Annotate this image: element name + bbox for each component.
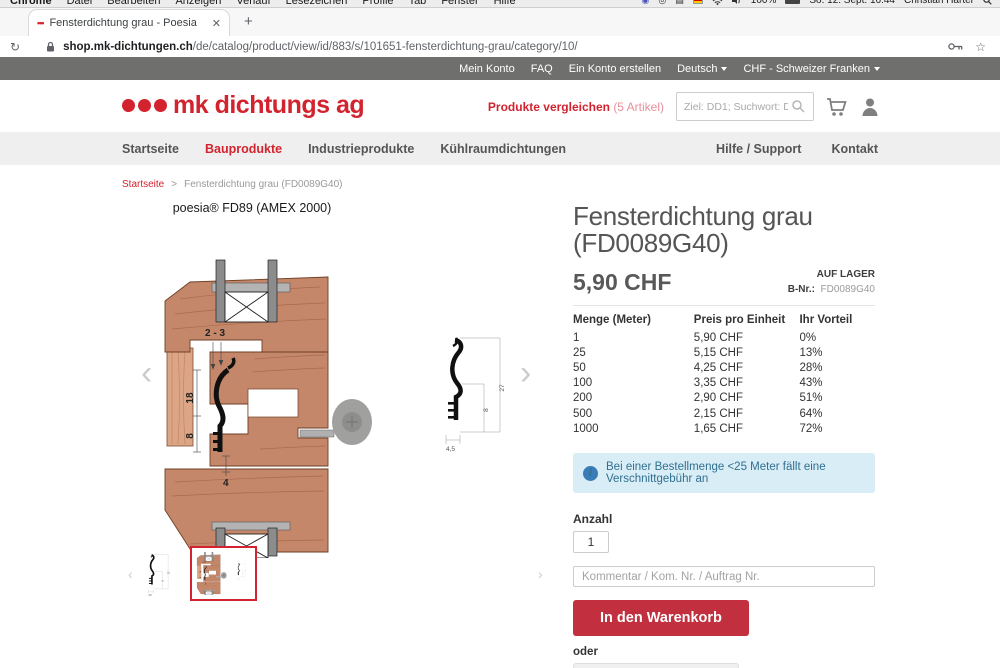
lock-icon[interactable] [46,41,55,52]
price-tier-table: Menge (Meter) Preis pro Einheit Ihr Vort… [573,311,875,436]
battery-percent: 100% [751,0,777,6]
product-drawing[interactable]: 2 - 3 18 8 4 27 8 4,5 [150,254,550,558]
menu-fenster[interactable]: Fenster [441,0,478,7]
menubar-clock[interactable]: So. 12. Sept. 16:44 [809,0,895,6]
search-input[interactable] [684,101,788,113]
tab-favicon: ••• [37,18,43,28]
topbar-faq[interactable]: FAQ [531,63,553,75]
table-row: 15,90 CHF0% [573,330,875,345]
logo-text: mk dichtungs ag [173,91,364,120]
figure-caption: poesia® FD89 (AMEX 2000) [122,201,382,215]
site-logo[interactable]: mk dichtungs ag [122,91,364,120]
battery-icon [785,0,800,4]
topbar-language-select[interactable]: Deutsch [677,63,727,75]
topbar-mein-konto[interactable]: Mein Konto [459,63,515,75]
chevron-down-icon [874,67,880,71]
configure-frame-button[interactable]: Rahmen konfektionieren [573,663,739,668]
reload-icon[interactable]: ↻ [10,40,20,54]
or-text: oder [573,646,875,658]
menu-chrome[interactable]: Chrome [10,0,52,7]
browser-tabstrip: ••• Fensterdichtung grau - Poesia ✕ + [0,8,1000,36]
wifi-icon[interactable] [712,0,723,5]
drawing-glass-pane [216,260,225,322]
info-icon: i [583,466,598,481]
german-flag-icon[interactable] [693,0,703,4]
bookmark-star-icon[interactable]: ☆ [975,40,986,54]
svg-text:8: 8 [185,433,196,439]
nav-hilfe-support[interactable]: Hilfe / Support [716,142,801,156]
menu-datei[interactable]: Datei [67,0,93,7]
menu-verlauf[interactable]: Verlauf [236,0,270,7]
topbar-konto-erstellen[interactable]: Ein Konto erstellen [569,63,661,75]
password-key-icon[interactable] [948,42,963,51]
quantity-input[interactable] [573,531,609,553]
teams-icon[interactable]: ◉ [642,0,650,6]
divider [573,305,875,306]
add-to-cart-button[interactable]: In den Warenkorb [573,600,749,636]
product-detail: Fensterdichtung grau(FD0089G40) 5,90 CHF… [573,203,875,668]
search-box [676,92,814,121]
site-header: mk dichtungs ag Produkte vergleichen (5 … [0,80,1000,132]
cart-icon[interactable] [826,97,848,117]
menu-profile[interactable]: Profile [362,0,393,7]
svg-text:2 - 3: 2 - 3 [205,328,225,339]
circle-icon[interactable]: ◎ [658,0,666,6]
table-row: 5002,15 CHF64% [573,406,875,421]
spotlight-search-icon[interactable] [983,0,992,5]
table-row: 2002,90 CHF51% [573,391,875,406]
breadcrumb: Startseite>Fensterdichtung grau (FD0089G… [122,179,343,190]
menu-hilfe[interactable]: Hilfe [494,0,516,7]
volume-icon[interactable] [732,0,742,5]
keyboard-icon[interactable]: ▤ [675,0,684,6]
compare-count: (5 Artikel) [613,100,664,114]
menu-tab[interactable]: Tab [409,0,427,7]
svg-text:4,5: 4,5 [446,446,455,453]
menubar-user[interactable]: Christian Harter [904,0,974,6]
nav-bauprodukte[interactable]: Bauprodukte [205,142,282,156]
product-title: Fensterdichtung grau(FD0089G40) [573,203,875,257]
site-topbar: Mein Konto FAQ Ein Konto erstellen Deuts… [0,57,1000,80]
url-text[interactable]: shop.mk-dichtungen.ch/de/catalog/product… [63,41,578,53]
info-note: i Bei einer Bestellmenge <25 Meter fällt… [573,453,875,493]
account-person-icon[interactable] [860,97,880,117]
site-nav: Startseite Bauprodukte Industrieprodukte… [0,132,1000,165]
url-path: /de/catalog/product/view/id/883/s/101651… [193,41,578,53]
menu-anzeigen[interactable]: Anzeigen [175,0,221,7]
table-row: 255,15 CHF13% [573,345,875,360]
nav-industrieprodukte[interactable]: Industrieprodukte [308,142,414,156]
browser-omnibox: ↻ shop.mk-dichtungen.ch/de/catalog/produ… [0,36,1000,58]
nav-kuehlraumdichtungen[interactable]: Kühlraumdichtungen [440,142,566,156]
svg-text:4: 4 [223,478,229,489]
breadcrumb-current: Fensterdichtung grau (FD0089G40) [184,179,342,190]
menu-lesezeichen[interactable]: Lesezeichen [286,0,348,7]
product-sku: B-Nr.: FD0089G40 [788,284,875,295]
table-row: 504,25 CHF28% [573,360,875,375]
macos-menubar: Chrome Datei Bearbeiten Anzeigen Verlauf… [0,0,1000,8]
svg-text:27: 27 [499,384,506,392]
url-domain: shop.mk-dichtungen.ch [63,41,193,53]
nav-kontakt[interactable]: Kontakt [831,142,878,156]
svg-text:18: 18 [185,392,196,404]
table-row: 1003,35 CHF43% [573,376,875,391]
breadcrumb-home[interactable]: Startseite [122,179,164,190]
compare-products-link[interactable]: Produkte vergleichen (5 Artikel) [488,100,664,114]
stock-status: AUF LAGER [817,269,875,280]
tab-close-icon[interactable]: ✕ [212,17,221,30]
logo-dots-icon [122,99,167,112]
thumbnail-profile[interactable] [139,551,177,597]
drawing-roller-fitting [332,399,372,445]
thumbs-next-button[interactable]: › [538,566,543,582]
new-tab-button[interactable]: + [244,13,253,30]
table-row: 10001,65 CHF72% [573,421,875,436]
quantity-label: Anzahl [573,512,875,526]
thumbs-prev-button[interactable]: ‹ [128,566,133,582]
nav-startseite[interactable]: Startseite [122,142,179,156]
drawing-glass-pane [268,260,277,322]
search-icon[interactable] [792,100,805,113]
chevron-down-icon [721,67,727,71]
browser-tab-active[interactable]: ••• Fensterdichtung grau - Poesia ✕ [28,9,230,36]
product-price: 5,90 CHF [573,269,671,296]
menu-bearbeiten[interactable]: Bearbeiten [107,0,160,7]
comment-input[interactable] [573,566,875,587]
drawing-glass-spacer [225,292,268,322]
drawing-side-profile [448,338,461,420]
topbar-currency-select[interactable]: CHF - Schweizer Franken [743,63,880,75]
tab-title: Fensterdichtung grau - Poesia [49,17,205,29]
thumbnail-drawing-selected[interactable] [190,546,257,601]
screen: Chrome Datei Bearbeiten Anzeigen Verlauf… [0,0,1000,668]
svg-text:8: 8 [483,408,490,412]
